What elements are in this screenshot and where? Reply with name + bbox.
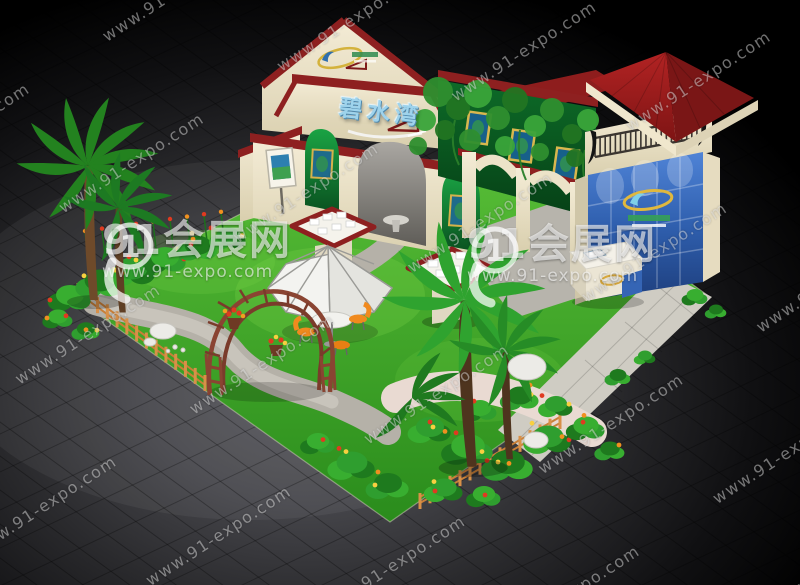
reception-desk [570,242,644,309]
green-niche-left [305,129,339,212]
scene-3d-render [0,0,800,585]
exhibition-booth-render: www.91-expo.comwww.91-expo.comwww.91-exp… [0,0,800,585]
